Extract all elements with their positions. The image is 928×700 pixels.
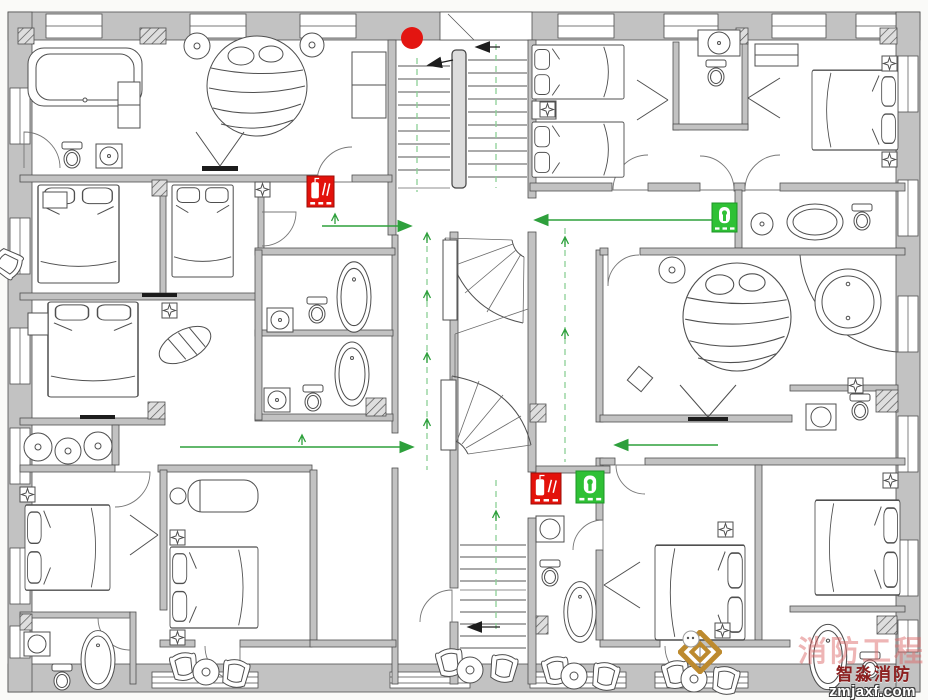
- floor-plan-stage: 消防工程 智淼消防 zmjaxf.com: [0, 0, 928, 700]
- fire-origin-dot: [401, 27, 423, 49]
- fire-origin-dot: [401, 27, 423, 49]
- fire-extinguisher-sign: [307, 176, 334, 207]
- floor-plan-svg: [0, 0, 928, 700]
- fire-hydrant-sign: [576, 471, 604, 503]
- fire-extinguisher-sign: [531, 473, 561, 504]
- room-left-b: [172, 185, 233, 277]
- fire-hydrant-sign: [712, 203, 737, 232]
